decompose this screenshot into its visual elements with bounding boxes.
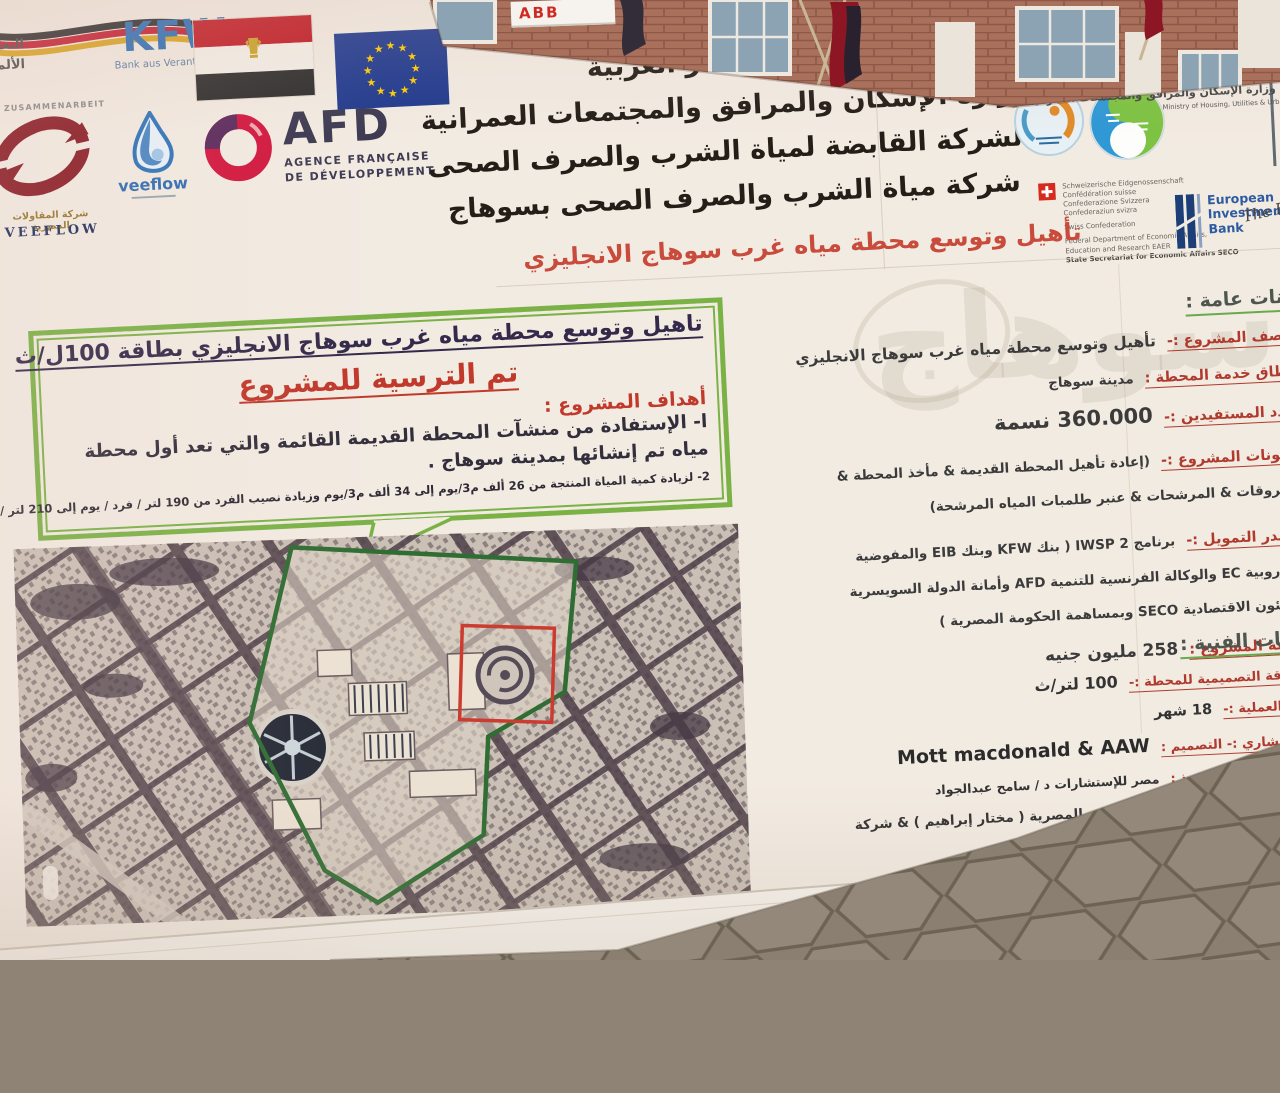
german-cooperation-arabic: التعاون الألماني: [0, 35, 26, 95]
satellite-map: [13, 524, 751, 927]
table-row: مصدر التمويل :- برنامج IWSP 2 ( بنك KFW …: [801, 517, 1280, 644]
afd-name: AFD: [282, 101, 434, 152]
table-row: مكونات المشروع :- (إعادة تأهيل المحطة ال…: [797, 437, 1280, 530]
row-value: 18 شهر: [1154, 702, 1213, 721]
row-value: 100 لتر/ث: [1034, 672, 1118, 695]
svg-text:★: ★: [373, 42, 384, 55]
svg-text:★: ★: [366, 76, 377, 89]
project-subtitle: تأهيل وتوسع محطة مياه غرب سوهاج الانجليز…: [536, 218, 1082, 273]
contracting-company-logo: [0, 110, 102, 211]
general-data-heading: بيانات عامة :: [1100, 285, 1280, 317]
svg-text:★: ★: [363, 64, 374, 77]
row-label: مدة العملية :-: [1223, 698, 1280, 719]
veeflow-name: veeflow: [113, 173, 194, 196]
row-label: الطاقة التصميمية للمحطة :-: [1129, 667, 1280, 693]
swiss-cross-icon: [1038, 183, 1056, 201]
afd-logo: AFD AGENCE FRANÇAISE DE DÉVELOPPEMENT: [282, 101, 436, 186]
row-value: مصر للإستشارات د / سامح عبدالجواد: [935, 772, 1160, 798]
row-value: Mott macdonald & AAW: [896, 735, 1150, 769]
eib-bars-icon: [1175, 194, 1204, 249]
award-box: تاهيل وتوسع محطة مياه غرب سوهاج الانجليز…: [28, 297, 732, 541]
row-label: مكونات المشروع :-: [1161, 447, 1280, 472]
svg-text:★: ★: [385, 39, 396, 52]
abb-sign: ABB: [511, 0, 616, 28]
svg-text:★: ★: [408, 74, 419, 87]
veeflow-droplet-icon: [121, 110, 180, 177]
afd-ring-icon: [198, 107, 280, 189]
egypt-eagle-icon: [245, 37, 262, 60]
row-label: عدد المستفيدين :-: [1164, 403, 1280, 427]
map-marker: [42, 866, 58, 901]
row-label: مصدر التمويل :-: [1186, 527, 1280, 551]
row-value: مدينة سوهاج: [1048, 371, 1134, 391]
svg-text:★: ★: [399, 83, 410, 96]
abb-sign-text: ABB: [519, 3, 560, 22]
ministry-english: Ministry of Housing, Utilities & Urban C…: [1162, 98, 1276, 112]
veeflow-divider: [132, 195, 176, 199]
svg-text:★: ★: [376, 84, 387, 97]
row-label: وصف المشروع :-: [1167, 327, 1280, 351]
egypt-flag-icon: [193, 15, 315, 101]
row-value: 360.000 نسمة: [993, 403, 1153, 435]
row-label: نطاق خدمة المحطة :: [1144, 363, 1280, 388]
